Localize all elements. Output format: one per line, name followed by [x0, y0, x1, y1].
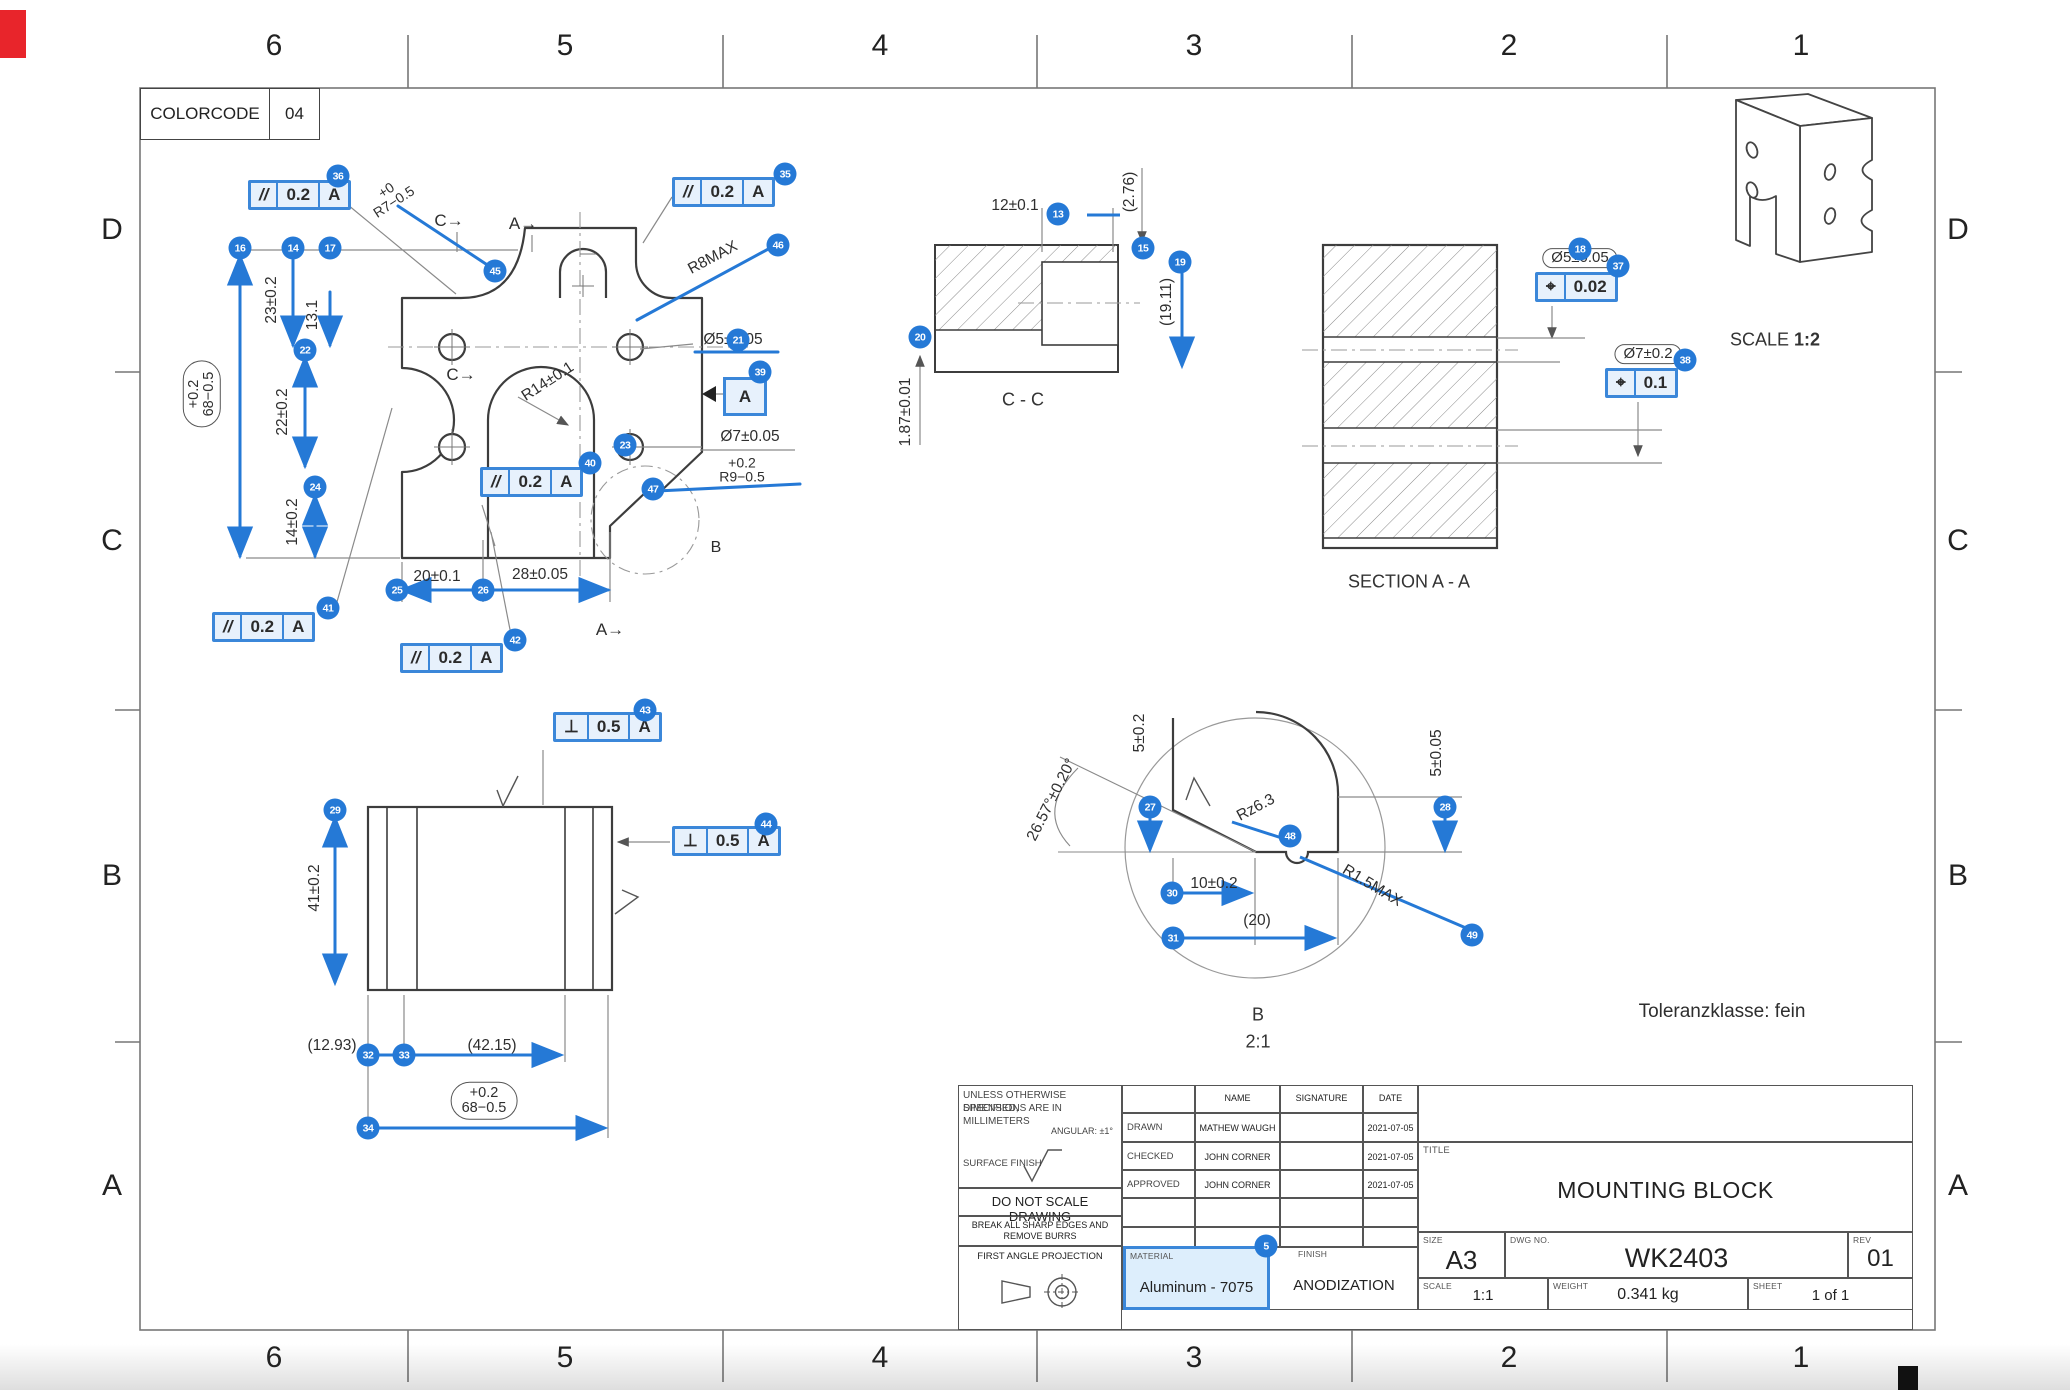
- iso-scale-value: 1:2: [1794, 330, 1820, 350]
- section-arrow-a-top: A→: [509, 214, 537, 234]
- grid-row-c-left: C: [101, 524, 123, 558]
- fcf-42-symbol: //: [403, 646, 430, 670]
- grid-row-d-right: D: [1947, 213, 1969, 247]
- balloon-46[interactable]: 46: [767, 234, 790, 257]
- dim-47-value: R9−0.5: [719, 470, 765, 484]
- grid-col-1-top: 1: [1793, 29, 1810, 63]
- tb-row-approved-sig: [1280, 1170, 1363, 1198]
- tolerance-note: Toleranzklasse: fein: [1639, 1001, 1806, 1023]
- tb-material-value: Aluminum - 7075: [1126, 1279, 1267, 1296]
- dim-23-text: Ø7±0.05: [720, 428, 779, 446]
- colorcode-box: COLORCODE 04: [140, 88, 320, 140]
- section-aa-geometry: [1302, 245, 1518, 548]
- tb-rev-label: REV: [1853, 1235, 1871, 1245]
- tb-row-approved-name: JOHN CORNER: [1195, 1170, 1280, 1198]
- fcf-37-tolerance: 0.02: [1566, 275, 1615, 299]
- balloon-44[interactable]: 44: [755, 813, 778, 836]
- balloon-40[interactable]: 40: [579, 452, 602, 475]
- tb-row-checked-role: CHECKED: [1122, 1142, 1195, 1170]
- balloon-48[interactable]: 48: [1279, 825, 1302, 848]
- grid-col-5-bottom: 5: [557, 1341, 574, 1375]
- iso-scale-word: SCALE: [1730, 330, 1789, 350]
- tb-break-edges-2: REMOVE BURRS: [959, 1231, 1121, 1241]
- tb-do-not-scale-cell: DO NOT SCALE DRAWING: [958, 1188, 1122, 1216]
- tb-col-signature: SIGNATURE: [1281, 1093, 1362, 1103]
- dim-31-text: (20): [1243, 912, 1271, 930]
- fcf-42[interactable]: // 0.2 A: [400, 643, 503, 673]
- section-arrow-a-bottom: A→: [596, 620, 624, 640]
- tb-empty-1: [1122, 1198, 1195, 1227]
- balloon-33[interactable]: 33: [393, 1044, 416, 1067]
- dim-25-text: 20±0.1: [413, 568, 460, 586]
- fcf-38-symbol: ⌖: [1608, 371, 1636, 395]
- tb-size-label: SIZE: [1423, 1235, 1443, 1245]
- dim-16-upper: +0.2: [187, 372, 202, 417]
- front-view-outline: [402, 228, 702, 558]
- tb-sheet-value: 1 of 1: [1749, 1287, 1912, 1304]
- balloon-19[interactable]: 19: [1169, 251, 1192, 274]
- tb-empty-4: [1363, 1198, 1418, 1227]
- grid-row-d-left: D: [101, 213, 123, 247]
- dim-16-value: 68−0.5: [202, 372, 217, 417]
- tb-size-cell: SIZE A3: [1418, 1232, 1505, 1278]
- tb-head-name: NAME: [1195, 1085, 1280, 1113]
- dim-30-text: 10±0.2: [1190, 875, 1237, 893]
- tb-row-drawn-role: DRAWN: [1122, 1113, 1195, 1142]
- balloon-32[interactable]: 32: [357, 1044, 380, 1067]
- balloon-36[interactable]: 36: [327, 165, 350, 188]
- tb-checked-label: CHECKED: [1127, 1151, 1173, 1162]
- dim-47-upper: +0.2: [719, 456, 765, 470]
- tb-notes-line2: DIMENSIONS ARE IN MILLIMETERS: [963, 1103, 1121, 1128]
- detail-b-label: B: [1252, 1005, 1264, 1026]
- grid-col-5-top: 5: [557, 29, 574, 63]
- section-aa-label: SECTION A - A: [1348, 572, 1470, 593]
- dim-32-text: (12.93): [307, 1037, 356, 1055]
- balloon-25[interactable]: 25: [386, 579, 409, 602]
- tb-approved-name: JOHN CORNER: [1196, 1180, 1279, 1190]
- balloon-29[interactable]: 29: [324, 799, 347, 822]
- fcf-38-tolerance: 0.1: [1636, 371, 1676, 395]
- grid-col-4-bottom: 4: [872, 1341, 889, 1375]
- iso-scale-label: SCALE 1:2: [1730, 330, 1820, 351]
- tb-checked-date: 2021-07-05: [1364, 1152, 1417, 1162]
- tb-break-edges-1: BREAK ALL SHARP EDGES AND: [959, 1220, 1121, 1230]
- tb-empty-8: [1363, 1227, 1418, 1247]
- tb-material-label: MATERIAL: [1130, 1251, 1173, 1261]
- tb-empty-5: [1122, 1227, 1195, 1247]
- red-corner-mark: [0, 10, 26, 58]
- grid-col-2-bottom: 2: [1501, 1341, 1518, 1375]
- fcf-41[interactable]: // 0.2 A: [212, 612, 315, 642]
- fcf-37-symbol: ⌖: [1538, 275, 1566, 299]
- fcf-44-symbol: ⊥: [675, 829, 708, 853]
- section-cc-geometry: [935, 245, 1140, 372]
- tb-col-date: DATE: [1364, 1093, 1417, 1103]
- balloon-42[interactable]: 42: [504, 629, 527, 652]
- fcf-41-datum: A: [284, 615, 312, 639]
- tb-sheet-cell: SHEET 1 of 1: [1748, 1278, 1913, 1310]
- dim-27-text: 5±0.2: [1131, 714, 1149, 753]
- tb-row-approved-role: APPROVED: [1122, 1170, 1195, 1198]
- dim-24-text: 14±0.2: [284, 498, 302, 545]
- fcf-43-symbol: ⊥: [556, 715, 589, 739]
- fcf-40-symbol: //: [483, 470, 510, 494]
- tb-empty-3: [1280, 1198, 1363, 1227]
- tb-row-checked-name: JOHN CORNER: [1195, 1142, 1280, 1170]
- tb-projection-cell: FIRST ANGLE PROJECTION: [958, 1246, 1122, 1330]
- balloon-49[interactable]: 49: [1461, 924, 1484, 947]
- balloon-15[interactable]: 15: [1132, 237, 1155, 260]
- tb-blank-top-right: [1418, 1085, 1913, 1142]
- balloon-35[interactable]: 35: [774, 163, 797, 186]
- cursor-mark: [1898, 1366, 1918, 1390]
- dim-15-text: (2.76): [1121, 172, 1139, 213]
- dim-34-frame: +0.2 68−0.5: [451, 1082, 518, 1120]
- balloon-5[interactable]: 5: [1255, 1235, 1278, 1258]
- tb-checked-name: JOHN CORNER: [1196, 1152, 1279, 1162]
- tb-dwg-cell: DWG NO. WK2403: [1505, 1232, 1848, 1278]
- tb-title-cell: TITLE MOUNTING BLOCK: [1418, 1142, 1913, 1232]
- balloon-17[interactable]: 17: [319, 237, 342, 260]
- dim-19-text: (19.11): [1158, 278, 1176, 326]
- fcf-35-symbol: //: [675, 180, 702, 204]
- grid-col-4-top: 4: [872, 29, 889, 63]
- balloon-27[interactable]: 27: [1139, 796, 1162, 819]
- dim-16-frame: +0.2 68−0.5: [183, 361, 221, 428]
- balloon-22[interactable]: 22: [294, 339, 317, 362]
- tb-rev-cell: REV 01: [1848, 1232, 1913, 1278]
- tb-row-drawn-sig: [1280, 1113, 1363, 1142]
- iso-view: [1736, 94, 1872, 262]
- fcf-44-tolerance: 0.5: [708, 829, 750, 853]
- grid-col-2-top: 2: [1501, 29, 1518, 63]
- tb-dwg-value: WK2403: [1506, 1243, 1847, 1274]
- dim-22-text: 22±0.2: [274, 388, 292, 435]
- tb-head-date: DATE: [1363, 1085, 1418, 1113]
- fcf-36-symbol: //: [251, 183, 278, 207]
- fcf-40[interactable]: // 0.2 A: [480, 467, 583, 497]
- grid-row-a-right: A: [1948, 1169, 1968, 1203]
- grid-row-b-left: B: [102, 859, 122, 893]
- section-arrow-c-mid: C→: [446, 365, 475, 385]
- grid-col-3-bottom: 3: [1186, 1341, 1203, 1375]
- fcf-41-tolerance: 0.2: [242, 615, 284, 639]
- detail-b-marker: B: [711, 539, 722, 557]
- dim-20-text: 1.87±0.01: [897, 378, 915, 447]
- tb-scale-value: 1:1: [1419, 1287, 1547, 1304]
- tb-break-edges-cell: BREAK ALL SHARP EDGES AND REMOVE BURRS: [958, 1216, 1122, 1246]
- balloon-41[interactable]: 41: [317, 597, 340, 620]
- fcf-42-tolerance: 0.2: [430, 646, 472, 670]
- dim-26-text: 28±0.05: [512, 566, 568, 584]
- dim-38-frame: Ø7±0.2: [1614, 344, 1681, 364]
- grid-col-6-top: 6: [266, 29, 283, 63]
- datum-a-triangle: [702, 386, 716, 402]
- tb-approved-label: APPROVED: [1127, 1179, 1180, 1190]
- fcf-41-symbol: //: [215, 615, 242, 639]
- balloon-39[interactable]: 39: [749, 361, 772, 384]
- tb-row-drawn-date: 2021-07-05: [1363, 1113, 1418, 1142]
- bottom-gradient: [0, 1344, 2070, 1390]
- tb-finish-value: ANODIZATION: [1270, 1277, 1418, 1294]
- section-cc-label: C - C: [1002, 390, 1044, 411]
- datum-a-letter: A: [739, 387, 751, 407]
- dim-33-text: (42.15): [467, 1037, 516, 1055]
- tb-scale-cell: SCALE 1:1: [1418, 1278, 1548, 1310]
- balloon-28[interactable]: 28: [1434, 796, 1457, 819]
- fcf-42-datum: A: [472, 646, 500, 670]
- tb-empty-2: [1195, 1198, 1280, 1227]
- tb-row-drawn-name: MATHEW WAUGH: [1195, 1113, 1280, 1142]
- tb-drawn-label: DRAWN: [1127, 1122, 1163, 1133]
- dim-34-value: 68−0.5: [462, 1101, 507, 1116]
- fcf-36-tolerance: 0.2: [278, 183, 320, 207]
- tb-drawn-date: 2021-07-05: [1364, 1123, 1417, 1133]
- tb-material-cell[interactable]: MATERIAL Aluminum - 7075: [1123, 1246, 1270, 1310]
- balloon-37[interactable]: 37: [1607, 255, 1630, 278]
- tb-approved-date: 2021-07-05: [1364, 1180, 1417, 1190]
- tb-size-value: A3: [1419, 1245, 1504, 1276]
- tb-row-approved-date: 2021-07-05: [1363, 1170, 1418, 1198]
- grid-col-6-bottom: 6: [266, 1341, 283, 1375]
- grid-row-a-left: A: [102, 1169, 122, 1203]
- dim-17-text: 13.1: [304, 300, 322, 330]
- balloon-31[interactable]: 31: [1162, 927, 1185, 950]
- colorcode-label: COLORCODE: [141, 89, 270, 139]
- dim-34-upper: +0.2: [462, 1086, 507, 1101]
- tb-head-blank: [1122, 1085, 1195, 1113]
- detail-b-geometry: [1055, 712, 1466, 978]
- colorcode-value: 04: [270, 89, 319, 139]
- tb-finish-cell: FINISH ANODIZATION: [1270, 1247, 1418, 1310]
- balloon-45[interactable]: 45: [484, 260, 507, 283]
- tb-finish-label: FINISH: [1298, 1249, 1327, 1259]
- fcf-40-tolerance: 0.2: [510, 470, 552, 494]
- tb-projection: FIRST ANGLE PROJECTION: [959, 1251, 1121, 1262]
- tb-weight-value: 0.341 kg: [1549, 1286, 1747, 1304]
- drawing-canvas: 6 5 4 3 2 1 6 5 4 3 2 1 D C B A D C B A …: [0, 0, 2070, 1390]
- dim-47-text: +0.2 R9−0.5: [719, 456, 765, 485]
- balloon-43[interactable]: 43: [634, 699, 657, 722]
- balloon-34[interactable]: 34: [357, 1117, 380, 1140]
- balloon-16[interactable]: 16: [229, 237, 252, 260]
- section-arrow-c-top: C→: [434, 211, 463, 231]
- grid-row-b-right: B: [1948, 859, 1968, 893]
- dim-14-text: 23±0.2: [263, 276, 281, 323]
- tb-title-value: MOUNTING BLOCK: [1419, 1177, 1912, 1204]
- balloon-24[interactable]: 24: [304, 476, 327, 499]
- tb-angular: ANGULAR: ±1°: [1051, 1126, 1113, 1137]
- balloon-26[interactable]: 26: [472, 579, 495, 602]
- fcf-43-tolerance: 0.5: [589, 715, 631, 739]
- fcf-35-datum: A: [744, 180, 772, 204]
- balloon-21[interactable]: 21: [727, 329, 750, 352]
- balloon-18[interactable]: 18: [1569, 238, 1592, 261]
- dim-29-text: 41±0.2: [306, 864, 324, 911]
- tb-weight-cell: WEIGHT 0.341 kg: [1548, 1278, 1748, 1310]
- balloon-23[interactable]: 23: [614, 434, 637, 457]
- tb-notes-cell: UNLESS OTHERWISE SPECIFIED, DIMENSIONS A…: [958, 1085, 1122, 1188]
- grid-col-3-top: 3: [1186, 29, 1203, 63]
- tb-row-checked-date: 2021-07-05: [1363, 1142, 1418, 1170]
- balloon-30[interactable]: 30: [1161, 882, 1184, 905]
- dim-13-text: 12±0.1: [991, 197, 1038, 215]
- fcf-38[interactable]: ⌖ 0.1: [1605, 368, 1678, 398]
- fcf-35[interactable]: // 0.2 A: [672, 177, 775, 207]
- balloon-38[interactable]: 38: [1674, 349, 1697, 372]
- grid-col-1-bottom: 1: [1793, 1341, 1810, 1375]
- tb-rev-value: 01: [1849, 1245, 1912, 1273]
- detail-b-scale: 2:1: [1245, 1032, 1270, 1053]
- side-view-geometry: [368, 807, 612, 990]
- grid-row-c-right: C: [1947, 524, 1969, 558]
- tb-surface-finish: SURFACE FINISH: [963, 1158, 1042, 1170]
- balloon-13[interactable]: 13: [1047, 203, 1070, 226]
- dim-28-text: 5±0.05: [1428, 729, 1446, 776]
- balloon-20[interactable]: 20: [909, 326, 932, 349]
- fcf-40-datum: A: [552, 470, 580, 494]
- fcf-35-tolerance: 0.2: [702, 180, 744, 204]
- balloon-47[interactable]: 47: [642, 478, 665, 501]
- tb-title-label: TITLE: [1423, 1145, 1450, 1156]
- tb-col-name: NAME: [1196, 1093, 1279, 1103]
- fcf-37[interactable]: ⌖ 0.02: [1535, 272, 1618, 302]
- tb-head-signature: SIGNATURE: [1280, 1085, 1363, 1113]
- balloon-14[interactable]: 14: [282, 237, 305, 260]
- tb-drawn-name: MATHEW WAUGH: [1196, 1123, 1279, 1133]
- tb-row-checked-sig: [1280, 1142, 1363, 1170]
- tb-empty-7: [1280, 1227, 1363, 1247]
